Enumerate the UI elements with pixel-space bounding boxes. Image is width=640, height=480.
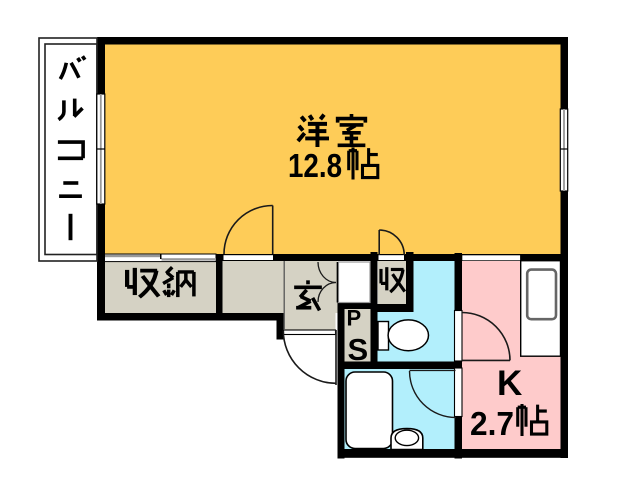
svg-text:2.7: 2.7 bbox=[470, 405, 514, 442]
svg-text:K: K bbox=[497, 364, 522, 403]
svg-text:12.8: 12.8 bbox=[288, 147, 342, 184]
svg-text:S: S bbox=[348, 332, 369, 367]
svg-text:P: P bbox=[347, 306, 362, 331]
